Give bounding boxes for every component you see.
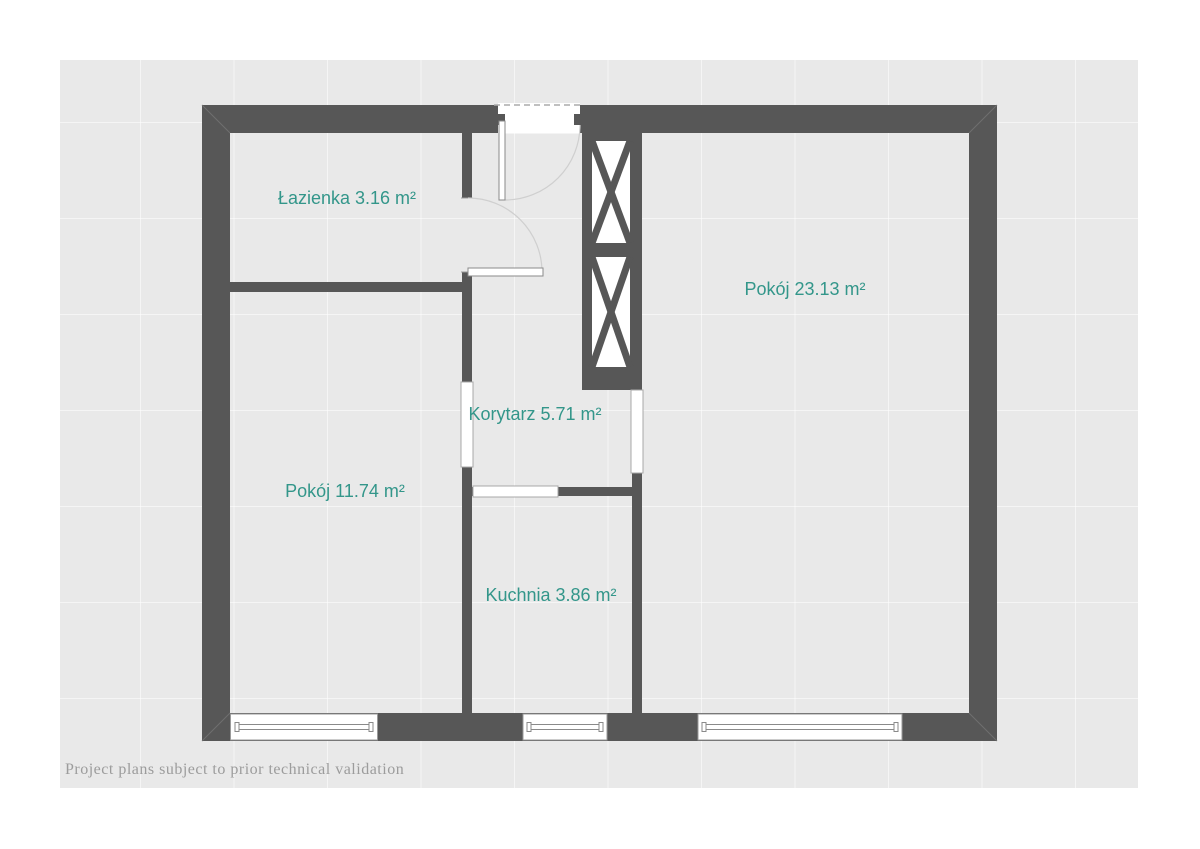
opening-pokoj-duzy: [631, 390, 643, 473]
room-label-pokoj-maly: Pokój 11.74 m²: [285, 482, 405, 502]
ventilation-shaft-top: [582, 133, 642, 255]
window-pokoj-maly: [231, 714, 378, 740]
room-label-korytarz: Korytarz 5.71 m²: [468, 405, 601, 425]
window-kuchnia: [523, 714, 607, 740]
entrance-door: [494, 103, 584, 200]
bathroom-door: [461, 198, 543, 276]
floor-plan-page: { "page": { "background": "#ffffff" }, "…: [0, 0, 1200, 849]
room-label-pokoj-duzy: Pokój 23.13 m²: [744, 280, 865, 300]
opening-kuchnia: [473, 486, 558, 497]
wall-openings: [461, 382, 643, 497]
room-label-lazienka: Łazienka 3.16 m²: [278, 189, 416, 209]
windows: [231, 714, 903, 740]
footer-disclaimer: Project plans subject to prior technical…: [65, 761, 404, 779]
ventilation-shaft-bottom: [582, 243, 642, 390]
window-pokoj-duzy: [698, 714, 902, 740]
room-label-kuchnia: Kuchnia 3.86 m²: [485, 586, 616, 606]
